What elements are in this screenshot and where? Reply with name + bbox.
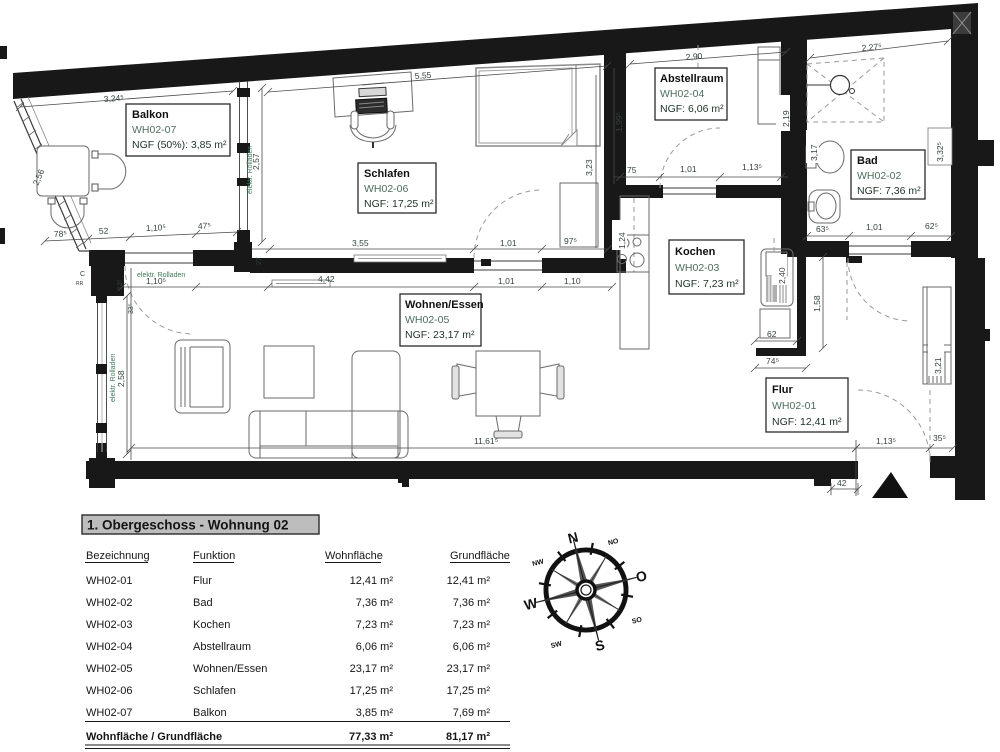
svg-text:WH02-01: WH02-01: [86, 575, 132, 587]
svg-text:WH02-04: WH02-04: [660, 88, 705, 100]
svg-text:WH02-05: WH02-05: [86, 663, 132, 675]
svg-text:62: 62: [767, 329, 777, 339]
svg-text:3,32⁵: 3,32⁵: [935, 142, 945, 162]
svg-text:WH02-01: WH02-01: [772, 400, 817, 412]
svg-text:1. Obergeschoss - Wohnung 02: 1. Obergeschoss - Wohnung 02: [87, 518, 289, 533]
svg-text:7,36 m²: 7,36 m²: [356, 597, 394, 609]
svg-text:3,24⁵: 3,24⁵: [103, 93, 124, 104]
svg-text:Balkon: Balkon: [193, 707, 227, 719]
svg-text:27: 27: [256, 257, 263, 265]
svg-text:7,23 m²: 7,23 m²: [453, 619, 491, 631]
svg-text:1,13⁵: 1,13⁵: [742, 162, 762, 172]
svg-text:77,33 m²: 77,33 m²: [349, 731, 393, 743]
svg-text:WH02-02: WH02-02: [857, 170, 902, 182]
svg-text:35⁵: 35⁵: [933, 433, 946, 443]
svg-text:97⁵: 97⁵: [564, 236, 577, 246]
svg-text:Schlafen: Schlafen: [193, 685, 236, 697]
svg-text:1,01: 1,01: [498, 276, 515, 286]
svg-text:12⁵: 12⁵: [117, 279, 124, 290]
svg-text:5,55: 5,55: [414, 70, 432, 81]
svg-text:1,99⁵: 1,99⁵: [614, 112, 624, 132]
svg-text:7,23 m²: 7,23 m²: [356, 619, 394, 631]
svg-text:WH02-07: WH02-07: [86, 707, 132, 719]
svg-text:12,41 m²: 12,41 m²: [350, 575, 394, 587]
svg-text:1,10⁵: 1,10⁵: [146, 276, 166, 286]
svg-text:WH02-06: WH02-06: [364, 183, 409, 195]
svg-text:WH02-02: WH02-02: [86, 597, 132, 609]
svg-text:75: 75: [627, 165, 637, 175]
svg-text:WH02-07: WH02-07: [132, 124, 177, 136]
svg-text:78⁵: 78⁵: [54, 228, 67, 239]
svg-text:C: C: [80, 271, 85, 278]
svg-text:17,25 m²: 17,25 m²: [447, 685, 491, 697]
svg-text:Abstellraum: Abstellraum: [193, 641, 251, 653]
svg-text:NGF: 7,23 m²: NGF: 7,23 m²: [675, 278, 739, 290]
svg-text:Bad: Bad: [857, 155, 878, 167]
svg-text:Balkon: Balkon: [132, 109, 169, 121]
svg-text:33⁵: 33⁵: [128, 303, 135, 314]
svg-text:23,17 m²: 23,17 m²: [447, 663, 491, 675]
svg-text:Wohnen/Essen: Wohnen/Essen: [193, 663, 267, 675]
svg-text:WH02-05: WH02-05: [405, 314, 450, 326]
svg-text:Wohnen/Essen: Wohnen/Essen: [405, 299, 484, 311]
svg-text:1,24: 1,24: [617, 232, 627, 249]
svg-text:7,36 m²: 7,36 m²: [453, 597, 491, 609]
svg-text:Grundfläche: Grundfläche: [450, 550, 510, 562]
svg-text:WH02-03: WH02-03: [675, 262, 720, 274]
svg-text:Schlafen: Schlafen: [364, 168, 410, 180]
svg-text:Kochen: Kochen: [193, 619, 230, 631]
svg-text:4,42: 4,42: [318, 274, 335, 284]
svg-text:1,01: 1,01: [500, 238, 517, 248]
svg-text:NGF: 23,17 m²: NGF: 23,17 m²: [405, 329, 475, 341]
svg-text:11,61⁵: 11,61⁵: [474, 436, 498, 446]
svg-text:3,17: 3,17: [809, 144, 819, 161]
svg-text:81,17 m²: 81,17 m²: [446, 731, 490, 743]
svg-text:52: 52: [99, 226, 109, 236]
svg-text:3,55: 3,55: [352, 238, 369, 248]
svg-text:Bezeichnung: Bezeichnung: [86, 550, 150, 562]
svg-text:74⁵: 74⁵: [766, 356, 779, 366]
svg-text:Flur: Flur: [193, 575, 212, 587]
svg-text:Flur: Flur: [772, 384, 793, 396]
svg-text:7,69 m²: 7,69 m²: [453, 707, 491, 719]
svg-text:WH02-04: WH02-04: [86, 641, 132, 653]
svg-text:2,19: 2,19: [781, 110, 791, 127]
svg-text:2,27⁵: 2,27⁵: [861, 41, 882, 53]
svg-text:Wohnfläche: Wohnfläche: [325, 550, 383, 562]
svg-text:62⁵: 62⁵: [925, 221, 938, 231]
svg-text:NGF: 7,36 m²: NGF: 7,36 m²: [857, 185, 921, 197]
svg-text:6,06 m²: 6,06 m²: [356, 641, 394, 653]
svg-text:42: 42: [837, 478, 847, 488]
svg-text:1,10⁵: 1,10⁵: [146, 222, 166, 233]
svg-text:12,41 m²: 12,41 m²: [447, 575, 491, 587]
svg-text:2,57: 2,57: [251, 153, 261, 170]
svg-text:47⁵: 47⁵: [198, 220, 211, 231]
svg-text:WH02-06: WH02-06: [86, 685, 132, 697]
svg-text:2,90: 2,90: [685, 51, 703, 62]
svg-text:1,58: 1,58: [812, 295, 822, 312]
svg-text:Wohnfläche / Grundfläche: Wohnfläche / Grundfläche: [86, 731, 222, 743]
svg-text:6,06 m²: 6,06 m²: [453, 641, 491, 653]
svg-text:63⁵: 63⁵: [816, 224, 829, 234]
svg-text:1,13⁵: 1,13⁵: [876, 436, 896, 446]
svg-text:3,21: 3,21: [933, 357, 943, 374]
svg-text:17,25 m²: 17,25 m²: [350, 685, 394, 697]
svg-text:2,40: 2,40: [777, 267, 787, 284]
svg-text:1,01: 1,01: [680, 164, 697, 174]
svg-text:RR: RR: [76, 281, 84, 287]
svg-text:NGF: 12,41 m²: NGF: 12,41 m²: [772, 416, 842, 428]
svg-text:3,23: 3,23: [584, 159, 594, 176]
svg-text:Abstellraum: Abstellraum: [660, 73, 724, 85]
svg-text:WH02-03: WH02-03: [86, 619, 132, 631]
svg-text:NGF (50%): 3,85 m²: NGF (50%): 3,85 m²: [132, 139, 227, 151]
svg-text:3,85 m²: 3,85 m²: [356, 707, 394, 719]
svg-text:23,17 m²: 23,17 m²: [350, 663, 394, 675]
svg-text:2,58: 2,58: [116, 370, 126, 387]
svg-text:NGF: 6,06 m²: NGF: 6,06 m²: [660, 103, 724, 115]
svg-text:NGF: 17,25 m²: NGF: 17,25 m²: [364, 198, 434, 210]
svg-text:1,10: 1,10: [564, 276, 581, 286]
svg-text:Kochen: Kochen: [675, 246, 716, 258]
svg-text:Bad: Bad: [193, 597, 213, 609]
svg-text:Funktion: Funktion: [193, 550, 235, 562]
svg-text:1,01: 1,01: [866, 222, 883, 232]
